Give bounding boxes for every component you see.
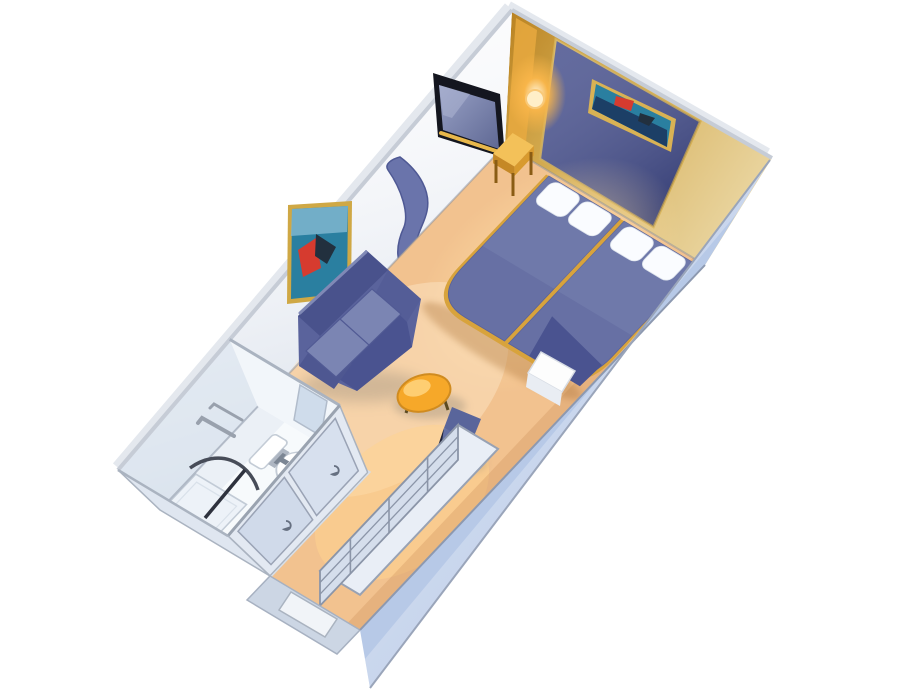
floorplan-canvas xyxy=(0,0,900,700)
sofa-art-sky xyxy=(291,206,348,236)
stateroom-floorplan xyxy=(0,0,900,700)
wall-sconce xyxy=(526,90,544,108)
